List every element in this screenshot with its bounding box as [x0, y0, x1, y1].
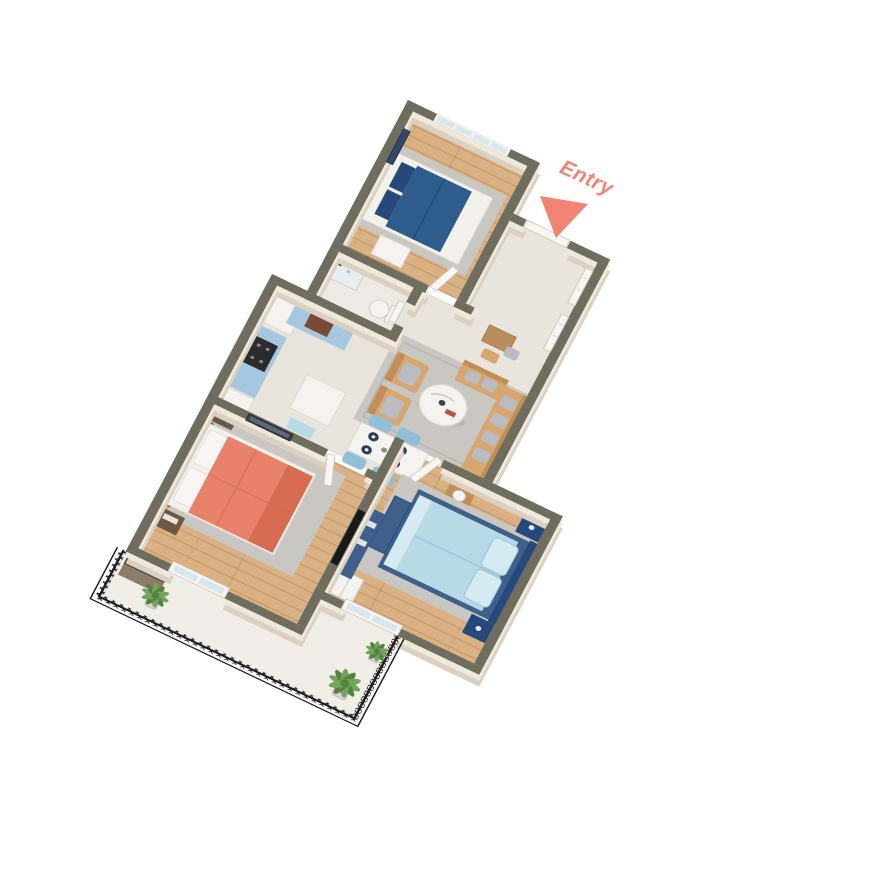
entry-indicator: Entry: [540, 156, 618, 238]
isometric-floor-plan: Entry: [0, 0, 870, 870]
floor-plan-render: Entry: [0, 0, 870, 870]
entry-label: Entry: [556, 156, 617, 201]
